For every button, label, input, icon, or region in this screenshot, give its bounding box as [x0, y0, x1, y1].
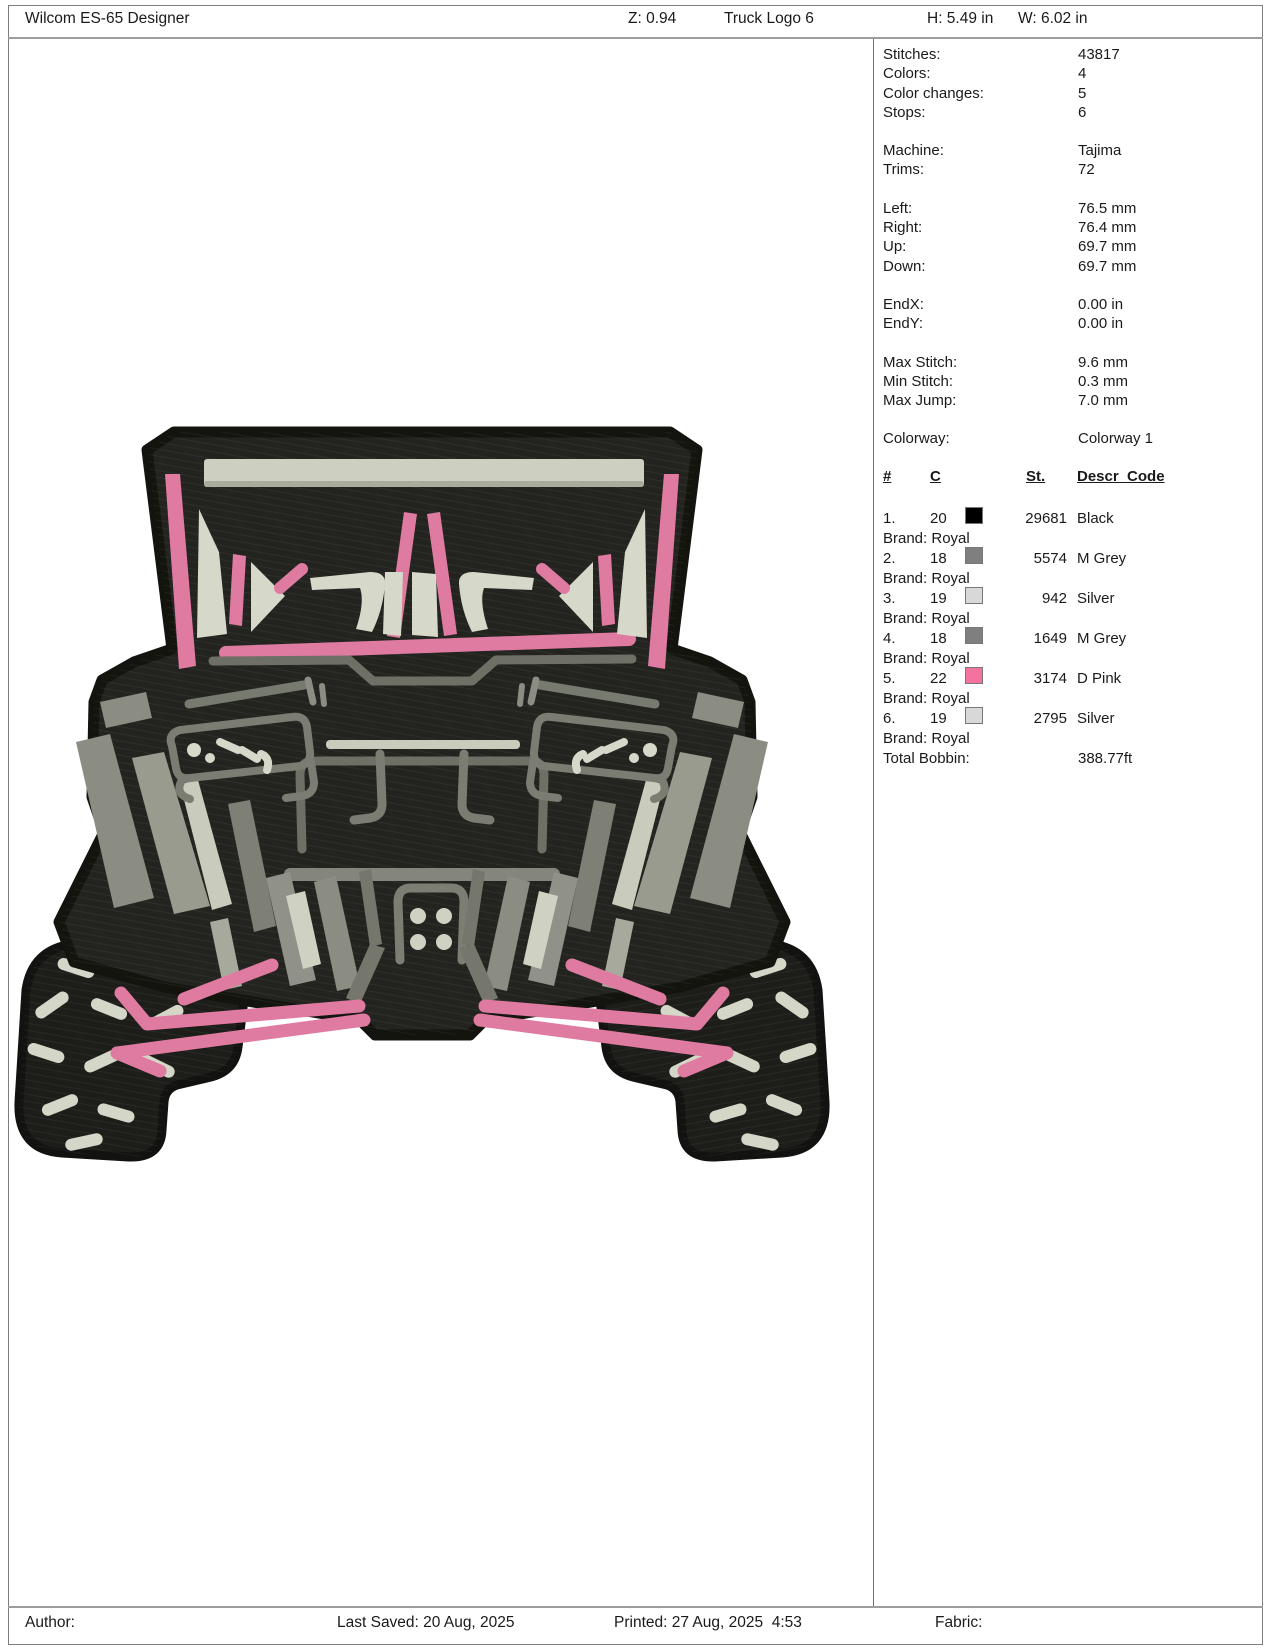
color-row-descr: Black — [1077, 509, 1114, 529]
color-row-needle: 19 — [930, 709, 965, 729]
col-header-st: St. — [990, 467, 1067, 487]
info-label: Machine: — [883, 141, 1078, 160]
info-label: Max Jump: — [883, 391, 1078, 410]
color-row-stitches: 29681 — [990, 509, 1067, 529]
info-value: 69.7 mm — [1078, 257, 1136, 276]
info-row: Left:76.5 mm — [883, 199, 1263, 218]
info-row: Stops:6 — [883, 103, 1263, 122]
color-swatch — [965, 667, 983, 684]
color-row-num: 3. — [883, 589, 930, 609]
color-row-needle: 20 — [930, 509, 965, 529]
info-label: Color changes: — [883, 84, 1078, 103]
info-value: 43817 — [1078, 45, 1120, 64]
color-row-descr: D Pink — [1077, 669, 1121, 689]
info-label: Trims: — [883, 160, 1078, 179]
color-table: 1. 20 29681 Black Brand: Royal 2. 18 557… — [883, 509, 1263, 769]
info-value: 72 — [1078, 160, 1095, 179]
color-row-needle: 18 — [930, 629, 965, 649]
footer-divider-line — [8, 1606, 1263, 1608]
color-row-brand: Brand: Royal — [883, 569, 1263, 589]
printed-date: Printed: 27 Aug, 2025 4:53 — [614, 1614, 802, 1632]
info-label: Max Stitch: — [883, 353, 1078, 372]
last-saved: Last Saved: 20 Aug, 2025 — [337, 1614, 515, 1632]
info-value: 0.00 in — [1078, 314, 1123, 333]
color-row: 2. 18 5574 M Grey Brand: Royal — [883, 549, 1263, 589]
color-row-needle: 22 — [930, 669, 965, 689]
info-row: Max Jump:7.0 mm — [883, 391, 1263, 410]
color-row: 1. 20 29681 Black Brand: Royal — [883, 509, 1263, 549]
color-row-num: 5. — [883, 669, 930, 689]
color-row-stitches: 942 — [990, 589, 1067, 609]
embroidery-design-preview — [14, 402, 830, 1162]
info-row: EndY:0.00 in — [883, 314, 1263, 333]
info-value: 9.6 mm — [1078, 353, 1128, 372]
info-label: Right: — [883, 218, 1078, 237]
info-value: 6 — [1078, 103, 1086, 122]
color-swatch — [965, 627, 983, 644]
info-label: Stops: — [883, 103, 1078, 122]
info-label: Min Stitch: — [883, 372, 1078, 391]
info-group-end: EndX:0.00 in EndY:0.00 in — [883, 295, 1263, 334]
info-row: Color changes:5 — [883, 84, 1263, 103]
info-row: Min Stitch:0.3 mm — [883, 372, 1263, 391]
info-label: Stitches: — [883, 45, 1078, 64]
design-name: Truck Logo 6 — [724, 10, 814, 28]
info-label: Left: — [883, 199, 1078, 218]
color-row-brand: Brand: Royal — [883, 529, 1263, 549]
color-row-num: 2. — [883, 549, 930, 569]
col-header-c: C — [930, 467, 965, 487]
info-value: 4 — [1078, 64, 1086, 83]
info-value: 5 — [1078, 84, 1086, 103]
color-swatch — [965, 547, 983, 564]
info-group-extents: Left:76.5 mm Right:76.4 mm Up:69.7 mm Do… — [883, 199, 1263, 276]
color-row-stitches: 5574 — [990, 549, 1067, 569]
col-header-descr: Descr_Code — [1077, 467, 1165, 487]
colorway-row: Colorway: Colorway 1 — [883, 429, 1263, 448]
author-label: Author: — [25, 1614, 75, 1632]
info-label: Up: — [883, 237, 1078, 256]
info-value: 69.7 mm — [1078, 237, 1136, 256]
info-row: Trims:72 — [883, 160, 1263, 179]
color-swatch — [965, 587, 983, 604]
app-title: Wilcom ES-65 Designer — [25, 10, 190, 28]
info-row: Right:76.4 mm — [883, 218, 1263, 237]
color-row-descr: Silver — [1077, 589, 1115, 609]
info-row: Stitches:43817 — [883, 45, 1263, 64]
color-row-brand: Brand: Royal — [883, 609, 1263, 629]
info-value: 7.0 mm — [1078, 391, 1128, 410]
color-row-stitches: 1649 — [990, 629, 1067, 649]
color-row-needle: 19 — [930, 589, 965, 609]
info-row: Down:69.7 mm — [883, 257, 1263, 276]
stitch-info-panel: Stitches:43817 Colors:4 Color changes:5 … — [883, 0, 1263, 769]
color-row: 5. 22 3174 D Pink Brand: Royal — [883, 669, 1263, 709]
color-row-num: 6. — [883, 709, 930, 729]
info-row: Up:69.7 mm — [883, 237, 1263, 256]
info-value: 0.00 in — [1078, 295, 1123, 314]
info-row: Max Stitch:9.6 mm — [883, 353, 1263, 372]
total-bobbin-row: Total Bobbin: 388.77ft — [883, 749, 1263, 769]
total-bobbin-value: 388.77ft — [1078, 749, 1132, 769]
info-group-machine: Machine:Tajima Trims:72 — [883, 141, 1263, 180]
color-swatch — [965, 507, 983, 524]
color-row-descr: Silver — [1077, 709, 1115, 729]
info-label: Down: — [883, 257, 1078, 276]
info-row: EndX:0.00 in — [883, 295, 1263, 314]
color-row: 6. 19 2795 Silver Brand: Royal — [883, 709, 1263, 749]
color-row: 3. 19 942 Silver Brand: Royal — [883, 589, 1263, 629]
info-value: Tajima — [1078, 141, 1121, 160]
col-header-num: # — [883, 467, 930, 487]
color-row-brand: Brand: Royal — [883, 729, 1263, 749]
print-preview-page: Wilcom ES-65 Designer Z: 0.94 Truck Logo… — [0, 0, 1275, 1650]
color-row: 4. 18 1649 M Grey Brand: Royal — [883, 629, 1263, 669]
color-row-num: 1. — [883, 509, 930, 529]
info-row: Colors:4 — [883, 64, 1263, 83]
info-group-stitch-limits: Max Stitch:9.6 mm Min Stitch:0.3 mm Max … — [883, 353, 1263, 411]
color-row-descr: M Grey — [1077, 629, 1126, 649]
info-label: EndY: — [883, 314, 1078, 333]
color-row-stitches: 3174 — [990, 669, 1067, 689]
color-row-descr: M Grey — [1077, 549, 1126, 569]
info-label: EndX: — [883, 295, 1078, 314]
color-table-header: # C St. Descr_Code — [883, 467, 1263, 487]
color-swatch — [965, 707, 983, 724]
info-row: Machine:Tajima — [883, 141, 1263, 160]
info-value: 76.5 mm — [1078, 199, 1136, 218]
colorway-label: Colorway: — [883, 429, 1078, 448]
panel-divider-line — [873, 39, 874, 1606]
total-bobbin-label: Total Bobbin: — [883, 749, 1078, 769]
color-row-num: 4. — [883, 629, 930, 649]
info-label: Colors: — [883, 64, 1078, 83]
info-value: 76.4 mm — [1078, 218, 1136, 237]
colorway-value: Colorway 1 — [1078, 429, 1153, 448]
color-row-needle: 18 — [930, 549, 965, 569]
info-group-counts: Stitches:43817 Colors:4 Color changes:5 … — [883, 45, 1263, 122]
fabric-label: Fabric: — [935, 1614, 982, 1632]
color-row-brand: Brand: Royal — [883, 689, 1263, 709]
color-row-stitches: 2795 — [990, 709, 1067, 729]
color-row-brand: Brand: Royal — [883, 649, 1263, 669]
info-value: 0.3 mm — [1078, 372, 1128, 391]
zoom-level: Z: 0.94 — [628, 10, 676, 28]
